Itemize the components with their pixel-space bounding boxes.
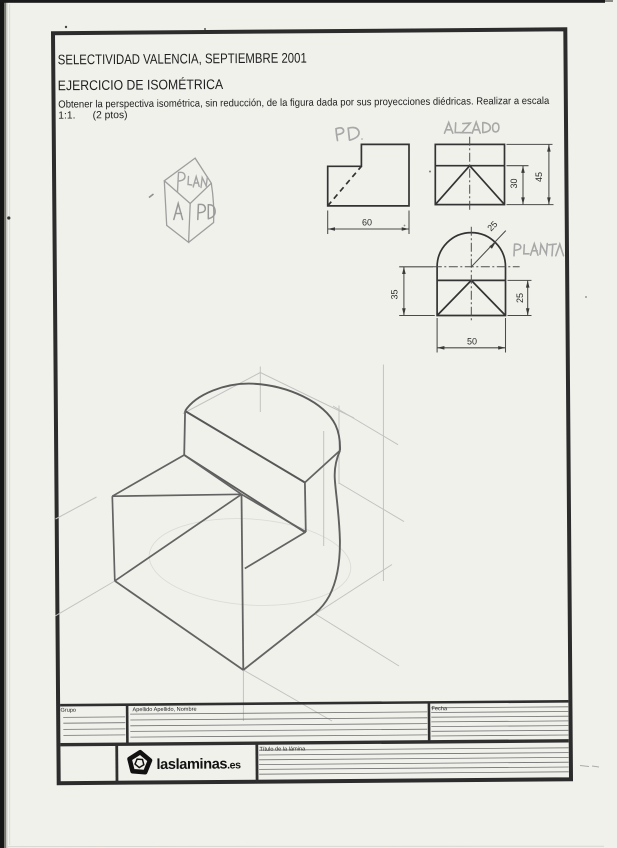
- svg-text:Título de la lámina: Título de la lámina: [259, 746, 306, 752]
- svg-text:45: 45: [534, 172, 544, 182]
- svg-text:30: 30: [509, 178, 519, 188]
- svg-text:SELECTIVIDAD VALENCIA, SEPTIEM: SELECTIVIDAD VALENCIA, SEPTIEMBRE 2001: [58, 50, 307, 68]
- svg-text:35: 35: [390, 289, 400, 299]
- svg-text:Grupo: Grupo: [60, 708, 76, 714]
- svg-text:60: 60: [362, 218, 372, 228]
- svg-text:laslaminas.es: laslaminas.es: [156, 756, 241, 773]
- svg-text:1:1. (2 ptos): 1:1. (2 ptos): [58, 110, 127, 122]
- svg-text:25: 25: [515, 293, 525, 303]
- svg-text:Apellido Apellido, Nombre: Apellido Apellido, Nombre: [132, 707, 196, 713]
- svg-text:Fecha: Fecha: [431, 706, 447, 712]
- svg-text:EJERCICIO DE ISOMÉTRICA: EJERCICIO DE ISOMÉTRICA: [58, 76, 224, 93]
- svg-text:50: 50: [467, 336, 477, 346]
